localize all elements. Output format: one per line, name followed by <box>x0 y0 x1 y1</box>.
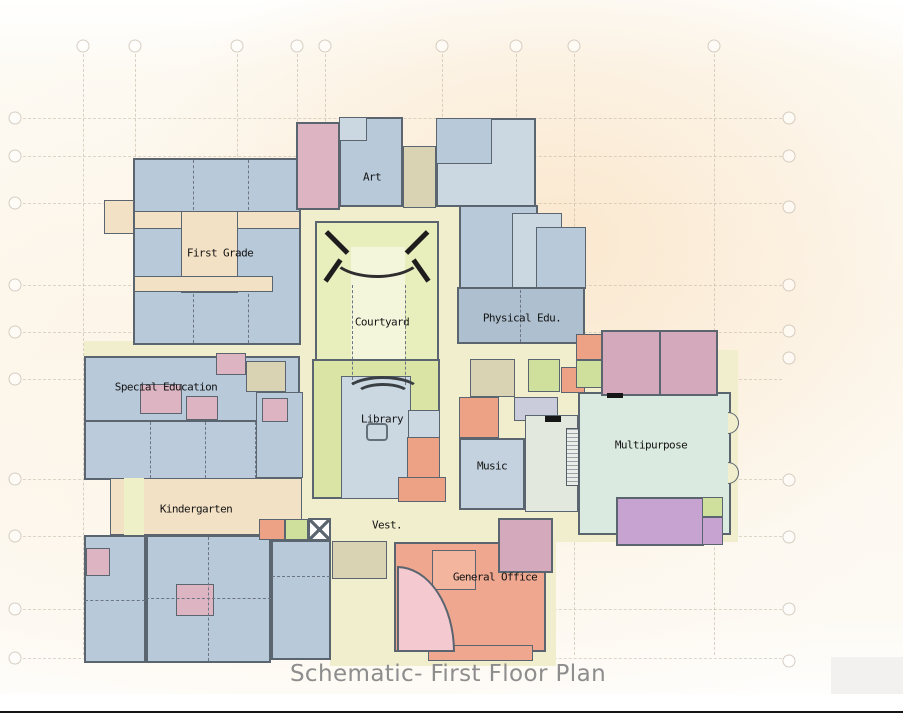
label-multipurpose: Multipurpose <box>615 439 687 452</box>
label-vest: Vest. <box>372 519 402 532</box>
label-first-grade: First Grade <box>187 247 253 260</box>
fg-dash-4 <box>248 294 249 343</box>
stair-xbox <box>308 518 331 541</box>
bottom-margin <box>0 694 903 722</box>
grid-bubble-left-6 <box>9 473 22 486</box>
mp-rest-divider <box>659 331 661 395</box>
ne-top-sub <box>436 118 492 164</box>
label-library: Library <box>361 413 403 426</box>
grid-bubble-top-1 <box>129 40 142 53</box>
label-general-office: General Office <box>453 571 537 584</box>
label-kindergarten: Kindergarten <box>160 503 232 516</box>
grid-bubble-right-3 <box>783 279 796 292</box>
grid-bubble-right-7 <box>783 531 796 544</box>
spec-dash-3 <box>255 422 256 478</box>
grid-bubble-top-7 <box>568 40 581 53</box>
purple-east-small <box>702 517 723 545</box>
music-green-room <box>528 359 560 392</box>
grid-bubble-right-8 <box>783 603 796 616</box>
floor-plan-canvas: First GradeArtCourtyardPhysical Edu.Spec… <box>0 0 903 722</box>
grid-bubble-right-9 <box>783 655 796 668</box>
fg-corridor-h2 <box>134 276 273 292</box>
grid-bubble-left-3 <box>9 279 22 292</box>
grid-bubble-right-1 <box>783 150 796 163</box>
grid-bubble-left-1 <box>9 150 22 163</box>
label-courtyard: Courtyard <box>355 316 409 329</box>
kg-east-block <box>271 540 331 660</box>
kg-dash-1 <box>208 537 209 661</box>
grid-bubble-left-9 <box>9 652 22 665</box>
vest-salmon-room <box>259 519 285 540</box>
amphitheater-arc-inner <box>355 383 411 407</box>
vest-green-room <box>285 519 308 540</box>
grid-bubble-top-5 <box>436 40 449 53</box>
fg-dash-3 <box>193 294 194 343</box>
grid-bubble-left-5 <box>9 373 22 386</box>
corridor-fg-west <box>104 200 136 234</box>
go-salmon-top <box>398 477 446 502</box>
mp-mark <box>607 393 623 398</box>
grid-bubble-left-7 <box>9 530 22 543</box>
music-salmon-room <box>459 397 499 438</box>
spec-east-pink <box>262 398 288 422</box>
label-special-education: Special Education <box>115 381 217 394</box>
grid-bubble-top-8 <box>708 40 721 53</box>
music-room <box>459 438 525 510</box>
go-restroom <box>498 518 553 573</box>
courtyard-dash-left <box>352 285 353 385</box>
fg-dash-2 <box>248 160 249 210</box>
grid-bubble-left-0 <box>9 112 22 125</box>
mp-salmon-small <box>576 334 602 360</box>
kg-east-dash <box>272 576 330 577</box>
grid-bubble-top-2 <box>231 40 244 53</box>
bottom-rule <box>0 711 903 713</box>
grid-bubble-left-8 <box>9 603 22 616</box>
kg-left-pink <box>86 548 110 576</box>
grid-bubble-right-2 <box>783 201 796 214</box>
fg-dash-1 <box>193 160 194 210</box>
label-art: Art <box>363 171 381 184</box>
grid-bubble-right-6 <box>783 474 796 487</box>
stage-mark <box>545 416 561 422</box>
spec-pink-2 <box>186 396 218 420</box>
grid-bubble-top-6 <box>510 40 523 53</box>
stair-vest <box>332 541 387 579</box>
stage-stairs-strip <box>566 428 579 486</box>
grid-bubble-right-4 <box>783 325 796 338</box>
restroom-north <box>296 122 340 210</box>
grid-bubble-right-0 <box>783 112 796 125</box>
stair-art <box>403 146 436 208</box>
library-table-icon <box>366 423 388 441</box>
grid-bubble-right-5 <box>783 352 796 365</box>
grid-bubble-top-3 <box>291 40 304 53</box>
grid-bubble-left-2 <box>9 197 22 210</box>
stair-special-ed <box>246 361 286 392</box>
ne-room-c <box>536 227 586 289</box>
grid-bubble-left-4 <box>9 326 22 339</box>
spec-pink-3 <box>216 353 246 375</box>
art-subroom <box>339 117 367 141</box>
label-music: Music <box>477 460 507 473</box>
courtyard-dash-right <box>405 285 406 385</box>
stair-music <box>470 359 515 397</box>
plan-title: Schematic- First Floor Plan <box>290 661 606 687</box>
mp-green-small <box>576 360 602 388</box>
grid-bubble-top-4 <box>319 40 332 53</box>
spec-dash-1 <box>150 422 151 478</box>
kg-left-dash <box>85 600 145 601</box>
grid-bubble-top-0 <box>77 40 90 53</box>
stage-room-purple <box>616 497 704 546</box>
spec-dash-2 <box>205 422 206 478</box>
label-physical-edu: Physical Edu. <box>483 312 561 325</box>
purple-green-small <box>702 497 723 517</box>
kg-dash-2 <box>146 598 271 599</box>
